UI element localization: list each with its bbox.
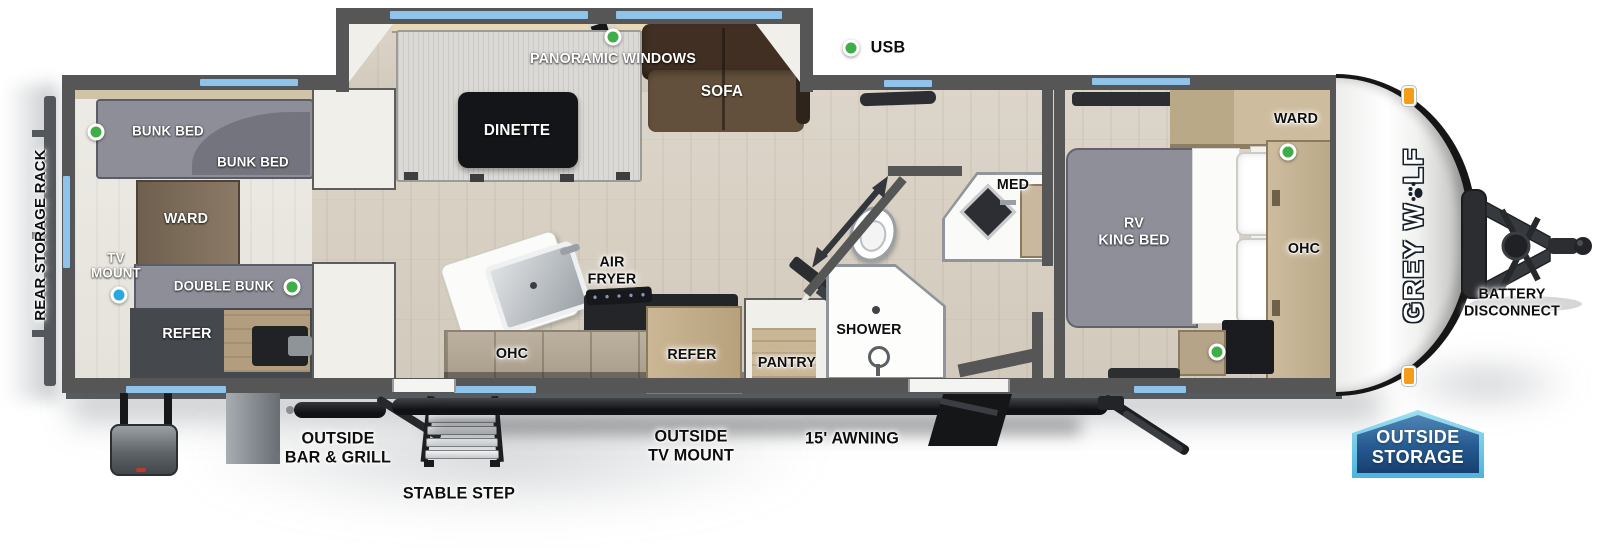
bath-wall-stub xyxy=(1032,312,1043,380)
label-battery-disconnect: BATTERY DISCONNECT xyxy=(1464,287,1560,320)
label-rear-storage-rack: REAR STORAGE RACK xyxy=(33,149,50,320)
window xyxy=(390,11,588,19)
tv-jack-dot xyxy=(111,287,128,304)
window xyxy=(454,386,536,393)
sofa-seam xyxy=(722,28,725,130)
label-air-fryer: AIR FRYER xyxy=(588,255,637,288)
brand-text-suffix: LF xyxy=(1399,147,1429,184)
label-outside-bar-grill-line1: OUTSIDE xyxy=(285,429,391,448)
label-air-fryer-line1: AIR xyxy=(588,255,637,272)
entry-door xyxy=(392,379,456,392)
ladder-foot xyxy=(424,460,434,467)
label-stable-step: STABLE STEP xyxy=(403,485,515,504)
door-swing-arrow-icon xyxy=(800,172,900,267)
ladder-rung xyxy=(426,438,498,447)
rear-rack-stub xyxy=(32,130,46,137)
label-bedroom-ohc: OHC xyxy=(1288,241,1320,258)
usb-dot xyxy=(284,279,301,296)
sofa-seat xyxy=(648,70,804,132)
label-usb-legend: USB xyxy=(871,39,906,58)
marker-light xyxy=(1402,366,1416,386)
floorplan-canvas: GREY WLF OUTSIDE STORAGE BUNK BED BUNK B… xyxy=(0,0,1600,548)
label-panoramic-windows: PANORAMIC WINDOWS xyxy=(530,51,696,68)
label-bunk-refer: REFER xyxy=(162,326,211,343)
sink-drain xyxy=(530,282,537,289)
badge-label-line1: OUTSIDE xyxy=(1352,428,1484,448)
usb-dot xyxy=(1209,344,1226,361)
hall-overhead xyxy=(860,91,936,107)
corridor-panel xyxy=(312,262,396,384)
label-tv-mount: TV MOUNT xyxy=(91,251,141,282)
paw-icon xyxy=(1408,184,1424,202)
brand-text-prefix: GREY W xyxy=(1399,202,1429,323)
window xyxy=(1134,386,1186,393)
label-bunk-ward: WARD xyxy=(164,211,208,228)
label-outside-bar-grill: OUTSIDE BAR & GRILL xyxy=(285,429,391,466)
label-air-fryer-line2: FRYER xyxy=(588,271,637,288)
bedroom-ward-face xyxy=(1170,90,1234,144)
label-rv-king-bed-line1: RV xyxy=(1098,216,1169,233)
bench-foot xyxy=(470,174,484,182)
shower-handle xyxy=(876,364,880,376)
ohc-handle xyxy=(1272,300,1280,316)
bedroom-overhead xyxy=(1072,92,1180,106)
label-outside-tv-mount-line1: OUTSIDE xyxy=(648,427,734,446)
label-outside-tv-mount: OUTSIDE TV MOUNT xyxy=(648,427,734,464)
bunkroom-appliance-detail xyxy=(288,336,312,356)
window xyxy=(616,11,782,19)
bedroom-wall-left xyxy=(1054,88,1065,380)
corridor-panel xyxy=(312,88,396,190)
grill-hook xyxy=(286,406,294,414)
slideout-wall-left xyxy=(336,8,349,92)
spare-tire-reflector xyxy=(136,468,146,472)
usb-dot xyxy=(88,124,105,141)
label-tv-mount-line2: MOUNT xyxy=(91,266,141,281)
label-outside-tv-mount-line2: TV MOUNT xyxy=(648,446,734,465)
rear-bumper xyxy=(226,392,280,464)
bath-wall-right xyxy=(1042,88,1053,266)
badge-label-line2: STORAGE xyxy=(1352,448,1484,468)
bed-sheet xyxy=(1192,148,1240,324)
label-rv-king-bed: RV KING BED xyxy=(1098,216,1169,249)
bunkroom-valance xyxy=(74,90,312,99)
label-awning: 15' AWNING xyxy=(805,430,899,449)
bath-faucet xyxy=(1000,200,1016,205)
label-kitchen-ohc: OHC xyxy=(496,346,528,363)
label-dinette: DINETTE xyxy=(484,122,550,140)
label-kitchen-refer: REFER xyxy=(667,347,716,364)
brand-logo: GREY WLF xyxy=(1399,147,1430,323)
ladder-foot xyxy=(490,460,500,467)
bench-foot xyxy=(560,174,574,182)
usb-dot xyxy=(1280,144,1297,161)
window xyxy=(1092,78,1190,85)
label-battery-line1: BATTERY xyxy=(1464,287,1560,304)
window xyxy=(884,80,932,87)
shower-drain xyxy=(872,306,880,314)
label-med: MED xyxy=(997,177,1029,194)
label-pantry: PANTRY xyxy=(758,355,816,372)
label-double-bunk: DOUBLE BUNK xyxy=(174,278,274,293)
label-bunk-bed-upper: BUNK BED xyxy=(132,123,204,138)
label-battery-line2: DISCONNECT xyxy=(1464,303,1560,320)
rear-rack-stub xyxy=(32,330,46,337)
usb-dot xyxy=(605,29,622,46)
entry-door xyxy=(908,379,1010,392)
window xyxy=(200,79,298,86)
bench-foot xyxy=(616,172,630,180)
marker-light xyxy=(1402,86,1416,106)
window xyxy=(126,386,226,393)
label-sofa: SOFA xyxy=(701,83,743,101)
label-outside-bar-grill-line2: BAR & GRILL xyxy=(285,448,391,467)
ladder-rung xyxy=(425,450,499,459)
bench-foot xyxy=(404,172,418,180)
awning-bracket xyxy=(1098,396,1124,410)
ohc-handle xyxy=(1272,190,1280,206)
label-rv-king-bed-line2: KING BED xyxy=(1098,232,1169,249)
outside-grill-bar xyxy=(294,402,386,418)
slideout-wall-right xyxy=(800,8,813,92)
window xyxy=(63,176,70,268)
label-shower: SHOWER xyxy=(836,322,901,339)
label-bunk-bed-lower: BUNK BED xyxy=(217,154,289,169)
label-bedroom-ward: WARD xyxy=(1274,111,1318,128)
badge-label: OUTSIDE STORAGE xyxy=(1352,428,1484,468)
usb-legend-dot xyxy=(843,40,860,57)
bedroom-tv-cabinet xyxy=(1222,320,1274,374)
